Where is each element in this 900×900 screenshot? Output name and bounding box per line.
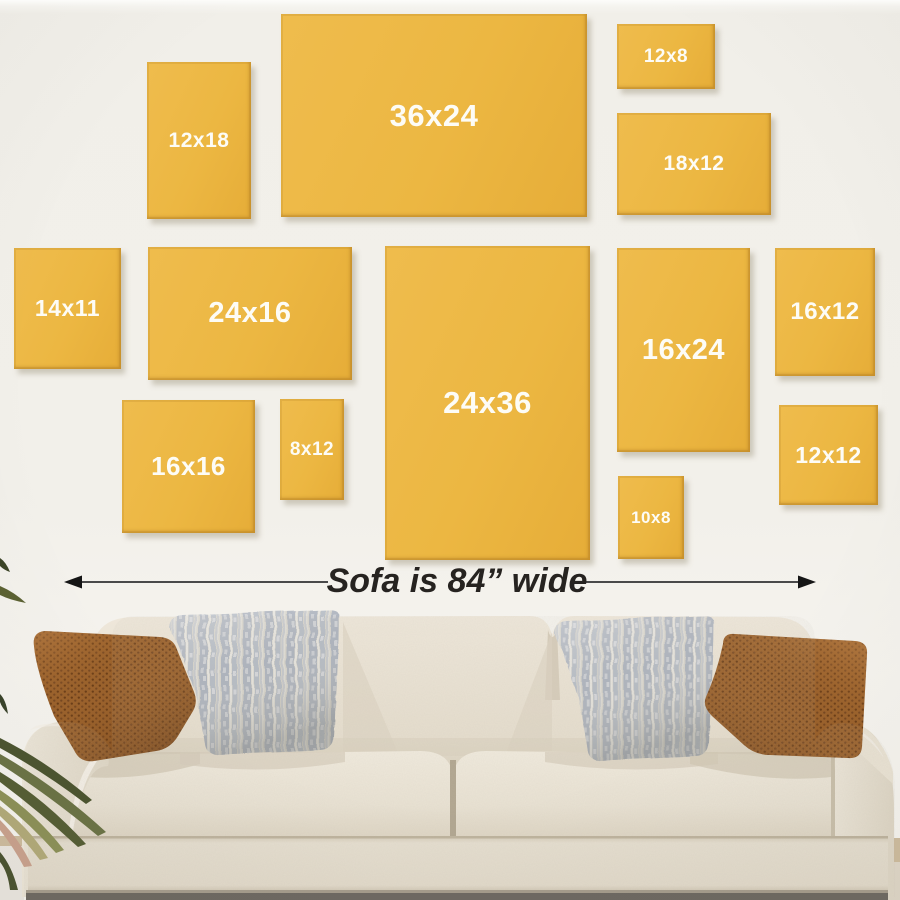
svg-text:Sofa is 84” wide: Sofa is 84” wide [327,562,588,600]
